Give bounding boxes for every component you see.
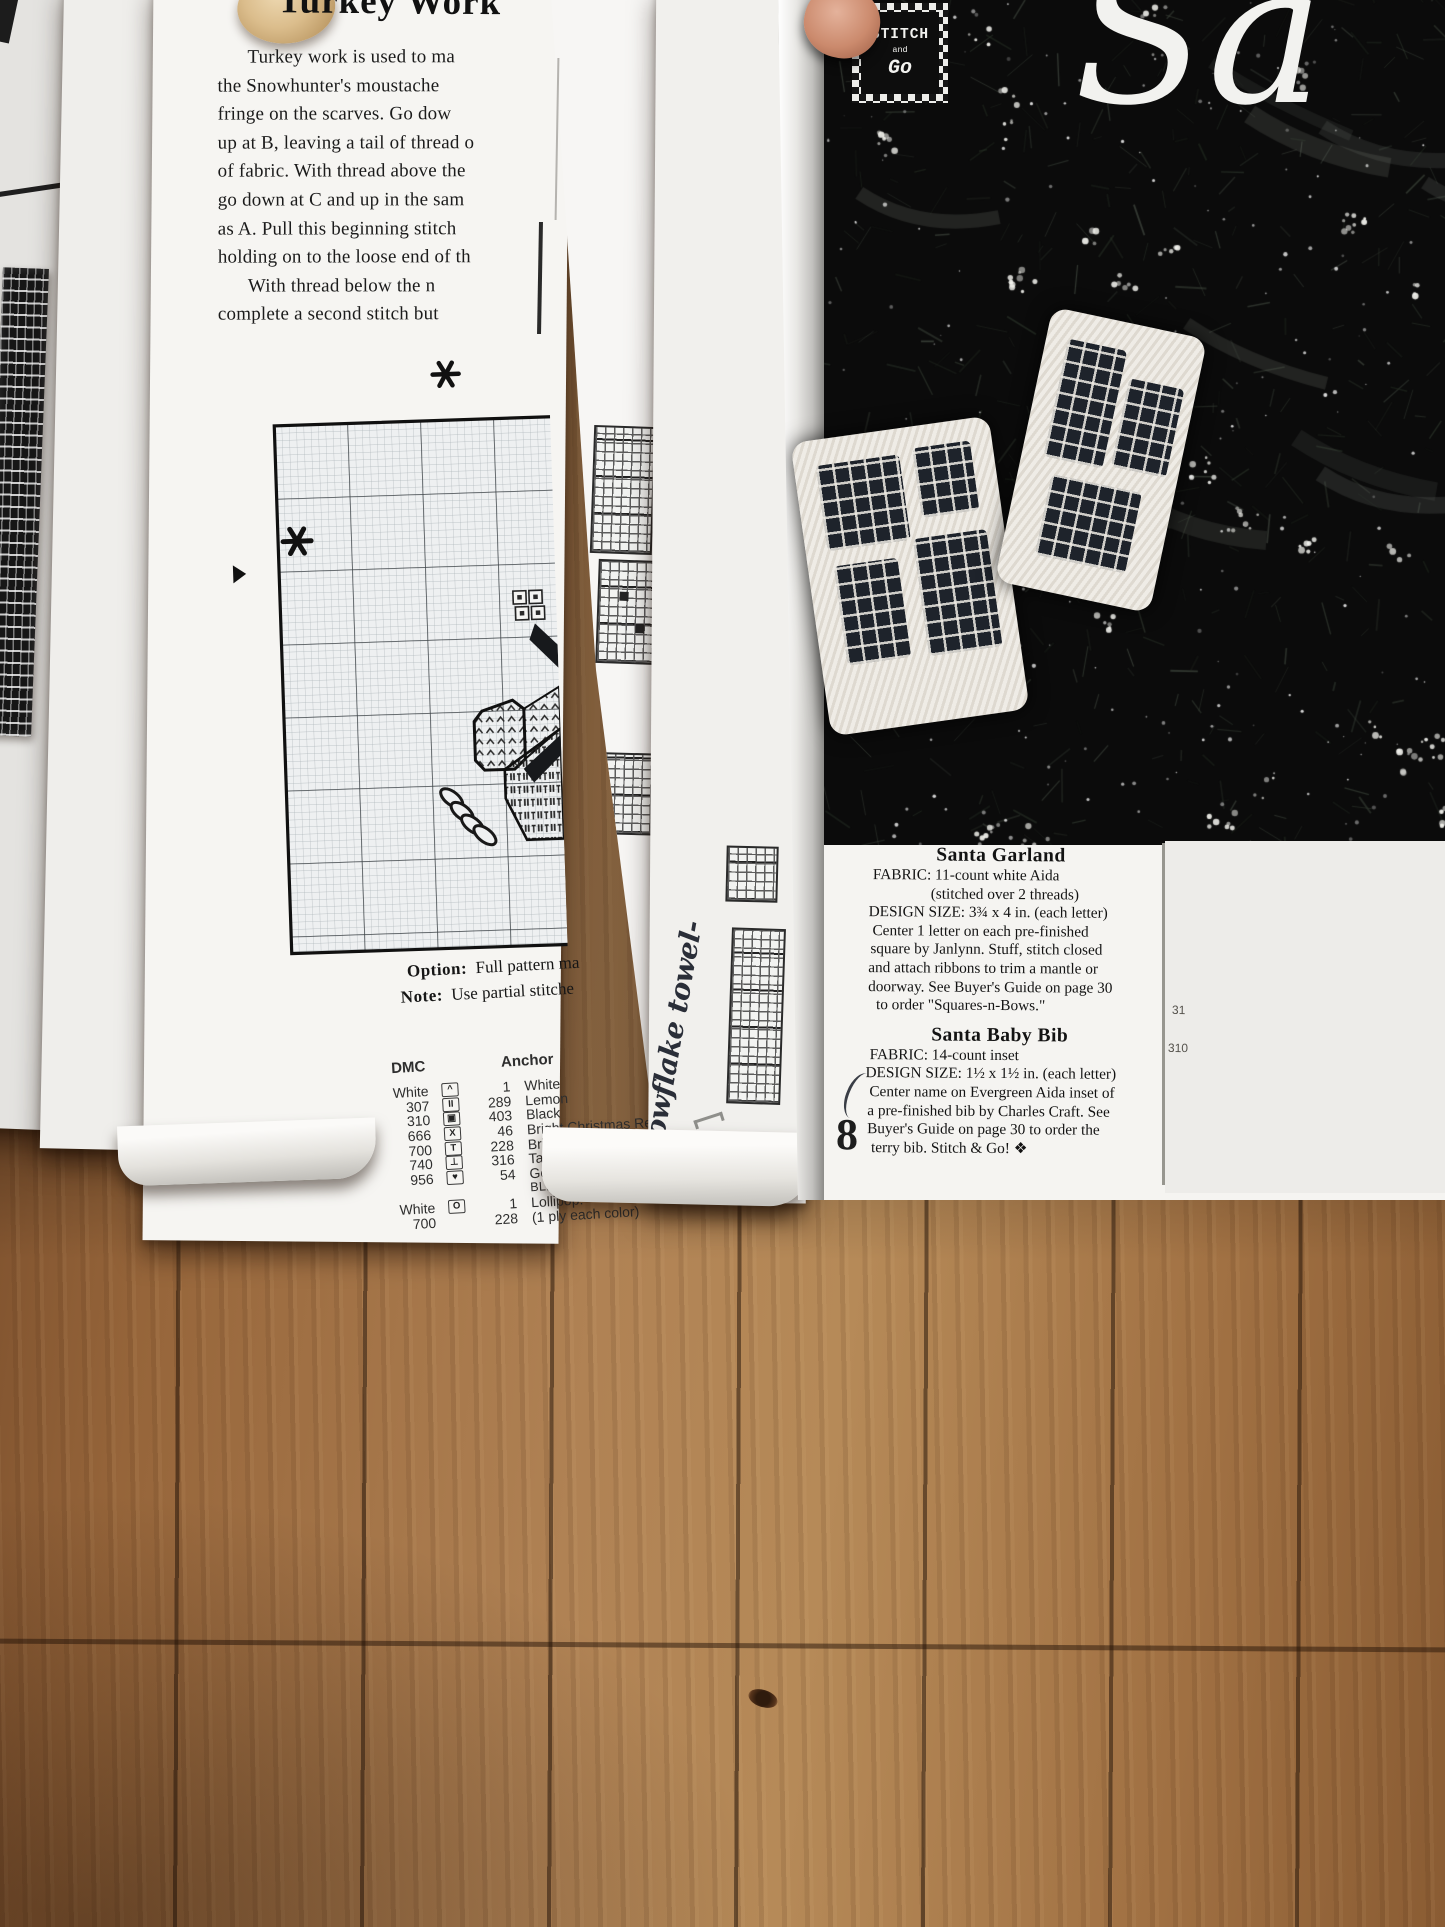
asterisk-marker-top xyxy=(432,362,459,385)
text-line: a pre-finished bib by Charles Craft. See xyxy=(867,1102,1157,1123)
dmc-value: 956 xyxy=(387,1171,434,1190)
text-line: doorway. See Buyer's Guide on page 30 xyxy=(868,978,1158,999)
option-text: Full pattern ma xyxy=(475,953,580,977)
text-line: fringe on the scarves. Go dow xyxy=(218,103,578,132)
edge-number: 31 xyxy=(1172,1003,1186,1017)
script-title-fragment: Sa xyxy=(1074,0,1324,132)
page-beneath xyxy=(1165,841,1445,1193)
snowman-cross-stitch-chart xyxy=(207,327,568,970)
santa-garland-title: Santa Garland xyxy=(843,844,1159,868)
stitch-symbol: ⊥ xyxy=(445,1155,463,1170)
text-line: Center name on Evergreen Aida inset of xyxy=(869,1083,1157,1104)
small-chart-fragment xyxy=(725,846,778,903)
text-line: and attach ribbons to trim a mantle or xyxy=(868,959,1158,980)
small-chart-fragment xyxy=(590,425,656,555)
logo-word-go: Go xyxy=(861,57,939,80)
stitch-block xyxy=(913,529,1003,656)
stitch-symbol: X xyxy=(444,1126,462,1141)
small-chart-fragment xyxy=(726,927,786,1105)
santa-garland-photo: STITCH and Go Sa xyxy=(824,0,1445,845)
filled-stitch-cell xyxy=(619,592,628,601)
text-line: With thread below the n xyxy=(218,275,578,304)
page-edge-line xyxy=(1162,843,1165,1185)
edge-number: 310 xyxy=(1168,1041,1188,1055)
text-line: up at B, leaving a tail of thread o xyxy=(218,132,578,161)
text-line: Turkey work is used to ma xyxy=(217,46,577,75)
text-line: DESIGN SIZE: 3¾ x 4 in. (each letter) xyxy=(869,903,1159,924)
article-text: Santa Garland FABRIC: 11-count white Aid… xyxy=(841,844,1159,1160)
stitch-symbol: ▣ xyxy=(443,1112,461,1127)
stitch-symbol: II xyxy=(442,1097,460,1112)
text-line: the Snowhunter's moustache xyxy=(217,75,577,104)
dmc-value: 700 xyxy=(390,1214,437,1233)
santa-baby-bib-title: Santa Baby Bib xyxy=(842,1024,1158,1048)
stitch-and-go-magazine-page: STITCH and Go Sa xyxy=(778,0,1445,1200)
stitch-symbol: ♥ xyxy=(446,1170,464,1185)
filled-stitch-cell xyxy=(635,624,644,633)
photo-of-craft-pattern-pages: Turkey Work Turkey work is used to ma th… xyxy=(0,0,1445,1927)
note-text: Use partial stitche xyxy=(451,979,575,1004)
anchor-value: 54 xyxy=(471,1166,516,1185)
anchor-value: 228 xyxy=(474,1210,519,1229)
chart-svg xyxy=(207,327,568,970)
text-line: as A. Pull this beginning stitch xyxy=(218,218,578,247)
logo-word-and: and xyxy=(861,45,939,55)
paper-curl-edge xyxy=(541,1127,811,1207)
paper-curl-edge xyxy=(117,1118,377,1187)
stitch-block xyxy=(1111,378,1184,478)
stitch-block xyxy=(1035,474,1142,573)
text-line: Center 1 letter on each pre-finished xyxy=(872,922,1158,943)
row-arrow-marker xyxy=(233,565,247,583)
instruction-paragraph: Turkey work is used to ma the Snowhunter… xyxy=(217,46,577,333)
note-line: Note: Use partial stitche xyxy=(400,979,574,1008)
text-line: to order "Squares-n-Bows." xyxy=(876,996,1158,1017)
stitch-block xyxy=(834,558,911,666)
stitch-symbol: ^ xyxy=(441,1083,459,1098)
text-line: Buyer's Guide on page 30 to order the xyxy=(867,1120,1157,1141)
dmc-header: DMC xyxy=(381,1057,442,1086)
anchor-header: Anchor xyxy=(501,1051,555,1080)
text-line: holding on to the loose end of th xyxy=(218,246,578,275)
text-line: of fabric. With thread above the xyxy=(218,160,578,189)
text-line: DESIGN SIZE: 1½ x 1½ in. (each letter) xyxy=(865,1064,1157,1085)
pillow-design xyxy=(808,434,1011,719)
note-label: Note: xyxy=(400,986,443,1007)
stitch-symbol: T xyxy=(445,1141,463,1156)
text-line: (stitched over 2 threads) xyxy=(931,885,1159,905)
turkey-work-page: Turkey Work Turkey work is used to ma th… xyxy=(143,0,570,1244)
stitch-block xyxy=(912,440,979,517)
text-line: FABRIC: 11-count white Aida xyxy=(873,866,1159,887)
page-title: Turkey Work xyxy=(277,0,501,24)
stitch-symbol: O xyxy=(448,1199,466,1214)
text-line: square by Janlynn. Stuff, stitch closed xyxy=(870,940,1158,961)
text-line: FABRIC: 14-count inset xyxy=(870,1046,1158,1067)
text-line: terry bib. Stitch & Go! ❖ xyxy=(871,1139,1157,1160)
stitch-block xyxy=(816,454,911,551)
cross-stitch-pillow xyxy=(790,416,1029,737)
option-label: Option: xyxy=(407,959,468,981)
text-line: go down at C and up in the sam xyxy=(218,189,578,218)
